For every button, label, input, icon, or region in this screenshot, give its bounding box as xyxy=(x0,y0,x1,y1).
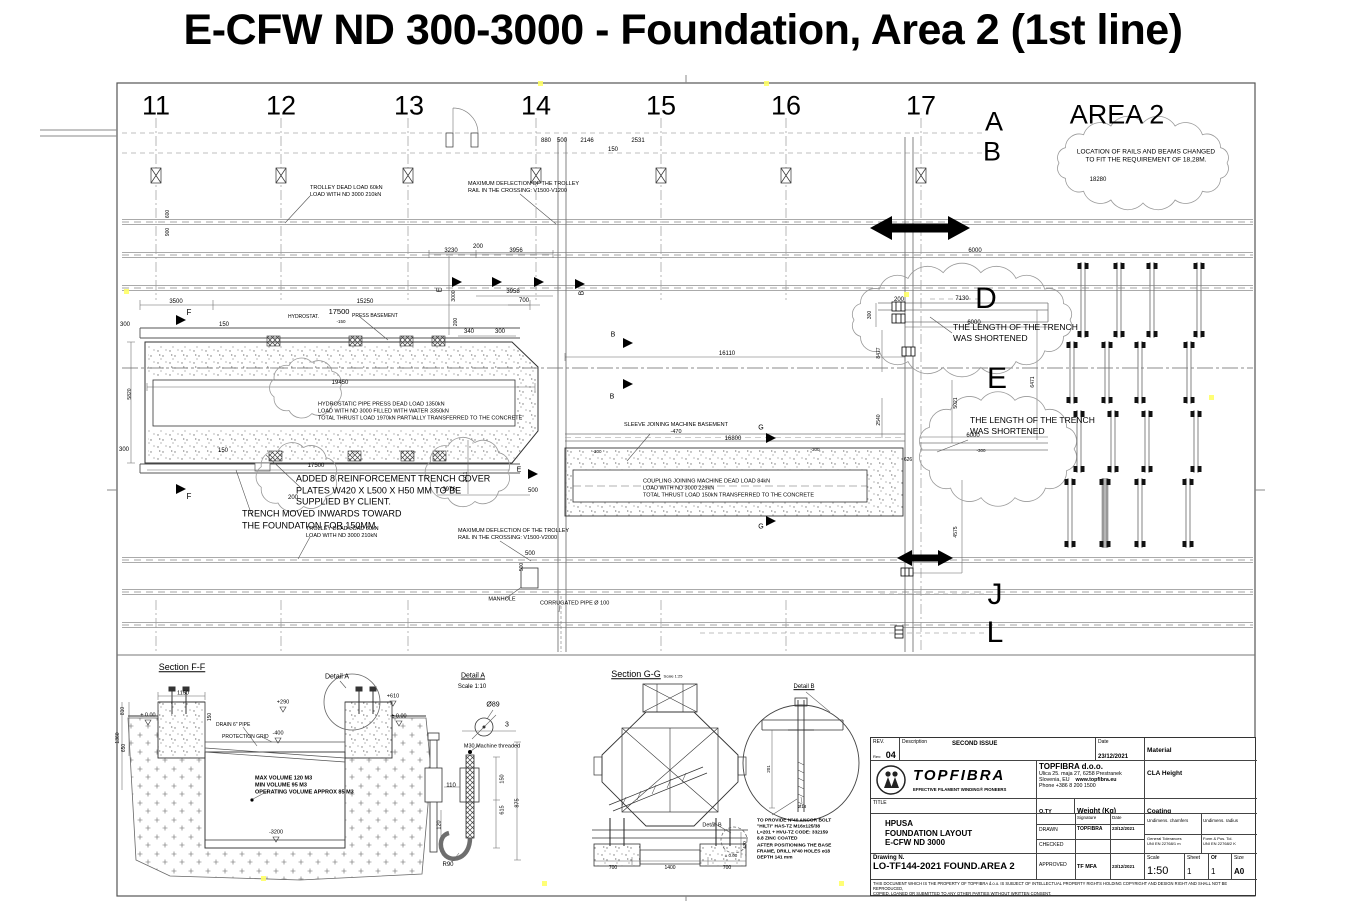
relocated-beams xyxy=(1065,262,1205,548)
checked-label: CHECKED xyxy=(1039,842,1063,848)
drawing-n-value: LO-TF144-2021 FOUND.AREA 2 xyxy=(873,861,1034,872)
of-value: 1 xyxy=(1211,867,1215,876)
drawn-signature: TOPFIBRA xyxy=(1077,826,1102,832)
approved-date: 23/12/2021 xyxy=(1112,864,1135,869)
drawn-date: 23/12/2021 xyxy=(1112,826,1135,831)
size-label: Size xyxy=(1234,855,1255,861)
topfibra-logo-icon xyxy=(875,764,907,796)
manhole-symbol xyxy=(521,568,538,588)
company-phone: Phone +386 8 200 1500 xyxy=(1039,783,1142,789)
approved-label: APPROVED xyxy=(1039,862,1067,868)
undim-chamfers-label: Undimens. chamfers xyxy=(1147,818,1188,823)
undim-radius-label: Undimens. radius xyxy=(1203,818,1238,823)
size-value: A0 xyxy=(1234,867,1244,876)
signature-label: Signature xyxy=(1077,815,1096,820)
disclaimer-line2: COPIED, LOANED OR SUBMITTED TO ANY OTHER… xyxy=(873,891,1255,896)
logo-tagline: EFFECTIVE FILAMENT WINDING® PIONEERS xyxy=(913,787,1006,792)
column-symbols xyxy=(151,108,926,183)
description-value: SECOND ISSUE xyxy=(952,741,997,747)
scale-value: 1:50 xyxy=(1147,865,1168,877)
approved-signature: TF MFA xyxy=(1077,864,1097,870)
screenshot-root: { "page_title": "E-CFW ND 300-3000 - Fou… xyxy=(0,0,1366,901)
rev-label: REV. xyxy=(873,739,897,745)
title-block: REV. Rev: 04 Description SECOND ISSUE Da… xyxy=(870,737,1256,896)
sheet-value: 1 xyxy=(1187,867,1191,876)
sleeve-trench xyxy=(565,434,905,516)
company-name: TOPFIBRA d.o.o. xyxy=(1039,762,1142,771)
description-label: Description xyxy=(902,739,927,745)
title-line2: FOUNDATION LAYOUT xyxy=(885,829,1034,839)
door-swing-icon xyxy=(446,108,478,147)
disclaimer-line1: THIS DOCUMENT WHICH IS THE PROPERTY OF T… xyxy=(873,881,1255,891)
general-tolerances-label: General Tolerances UNI EN 22768/1 m xyxy=(1147,837,1182,847)
detail-a-drawing xyxy=(425,710,521,862)
logo-wordmark: TOPFIBRA xyxy=(913,767,1005,784)
title-line3: E-CFW ND 3000 xyxy=(885,838,1034,848)
section-ff-drawing xyxy=(122,674,431,880)
of-label: Of xyxy=(1211,855,1229,861)
date2-label: Date xyxy=(1112,815,1122,820)
scale-label: Scale xyxy=(1147,855,1182,861)
detail-b-drawing xyxy=(743,692,859,821)
section-gg-drawing xyxy=(592,684,748,866)
rev-value: 04 xyxy=(886,750,896,760)
sheet-label: Sheet xyxy=(1187,855,1206,861)
title-label: TITLE xyxy=(873,800,1034,806)
form-pos-tol-label: Form & Pos. Tol. UNI EN 22768/2 K xyxy=(1203,837,1236,847)
title-line1: HPUSA xyxy=(885,819,1034,829)
material-label: Material xyxy=(1147,747,1172,754)
drawn-label: DRAWN xyxy=(1039,827,1058,833)
rev-small-label: Rev: xyxy=(873,754,881,759)
cla-height-label: CLA Height xyxy=(1147,770,1182,777)
date-label: Date xyxy=(1098,739,1142,745)
